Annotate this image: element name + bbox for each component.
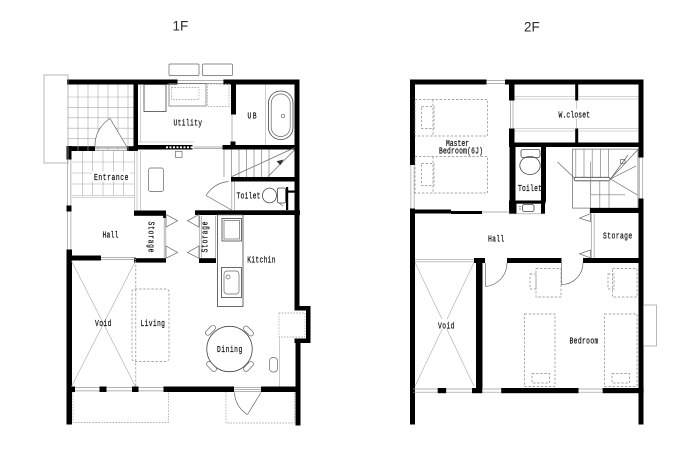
svg-text:Hall: Hall — [103, 232, 119, 241]
svg-text:Storage: Storage — [145, 222, 154, 253]
svg-text:Bedroom: Bedroom — [570, 338, 599, 347]
svg-text:UB: UB — [248, 113, 257, 122]
svg-text:Bedroom(6J): Bedroom(6J) — [439, 148, 483, 157]
svg-text:Void: Void — [95, 320, 111, 329]
svg-text:Hall: Hall — [488, 236, 505, 245]
svg-text:Storage: Storage — [202, 221, 211, 252]
svg-text:Void: Void — [438, 323, 454, 332]
svg-text:Utility: Utility — [174, 120, 203, 129]
svg-text:Storage: Storage — [603, 233, 633, 242]
svg-text:Living: Living — [141, 320, 165, 329]
svg-text:1F: 1F — [173, 19, 189, 34]
svg-text:Toilet: Toilet — [237, 193, 261, 202]
svg-text:Entrance: Entrance — [94, 174, 129, 183]
svg-text:2F: 2F — [524, 20, 540, 35]
svg-text:Toilet: Toilet — [518, 185, 542, 194]
svg-text:W.closet: W.closet — [559, 112, 591, 121]
svg-text:Kitchin: Kitchin — [247, 257, 275, 266]
svg-text:Dining: Dining — [217, 346, 242, 355]
